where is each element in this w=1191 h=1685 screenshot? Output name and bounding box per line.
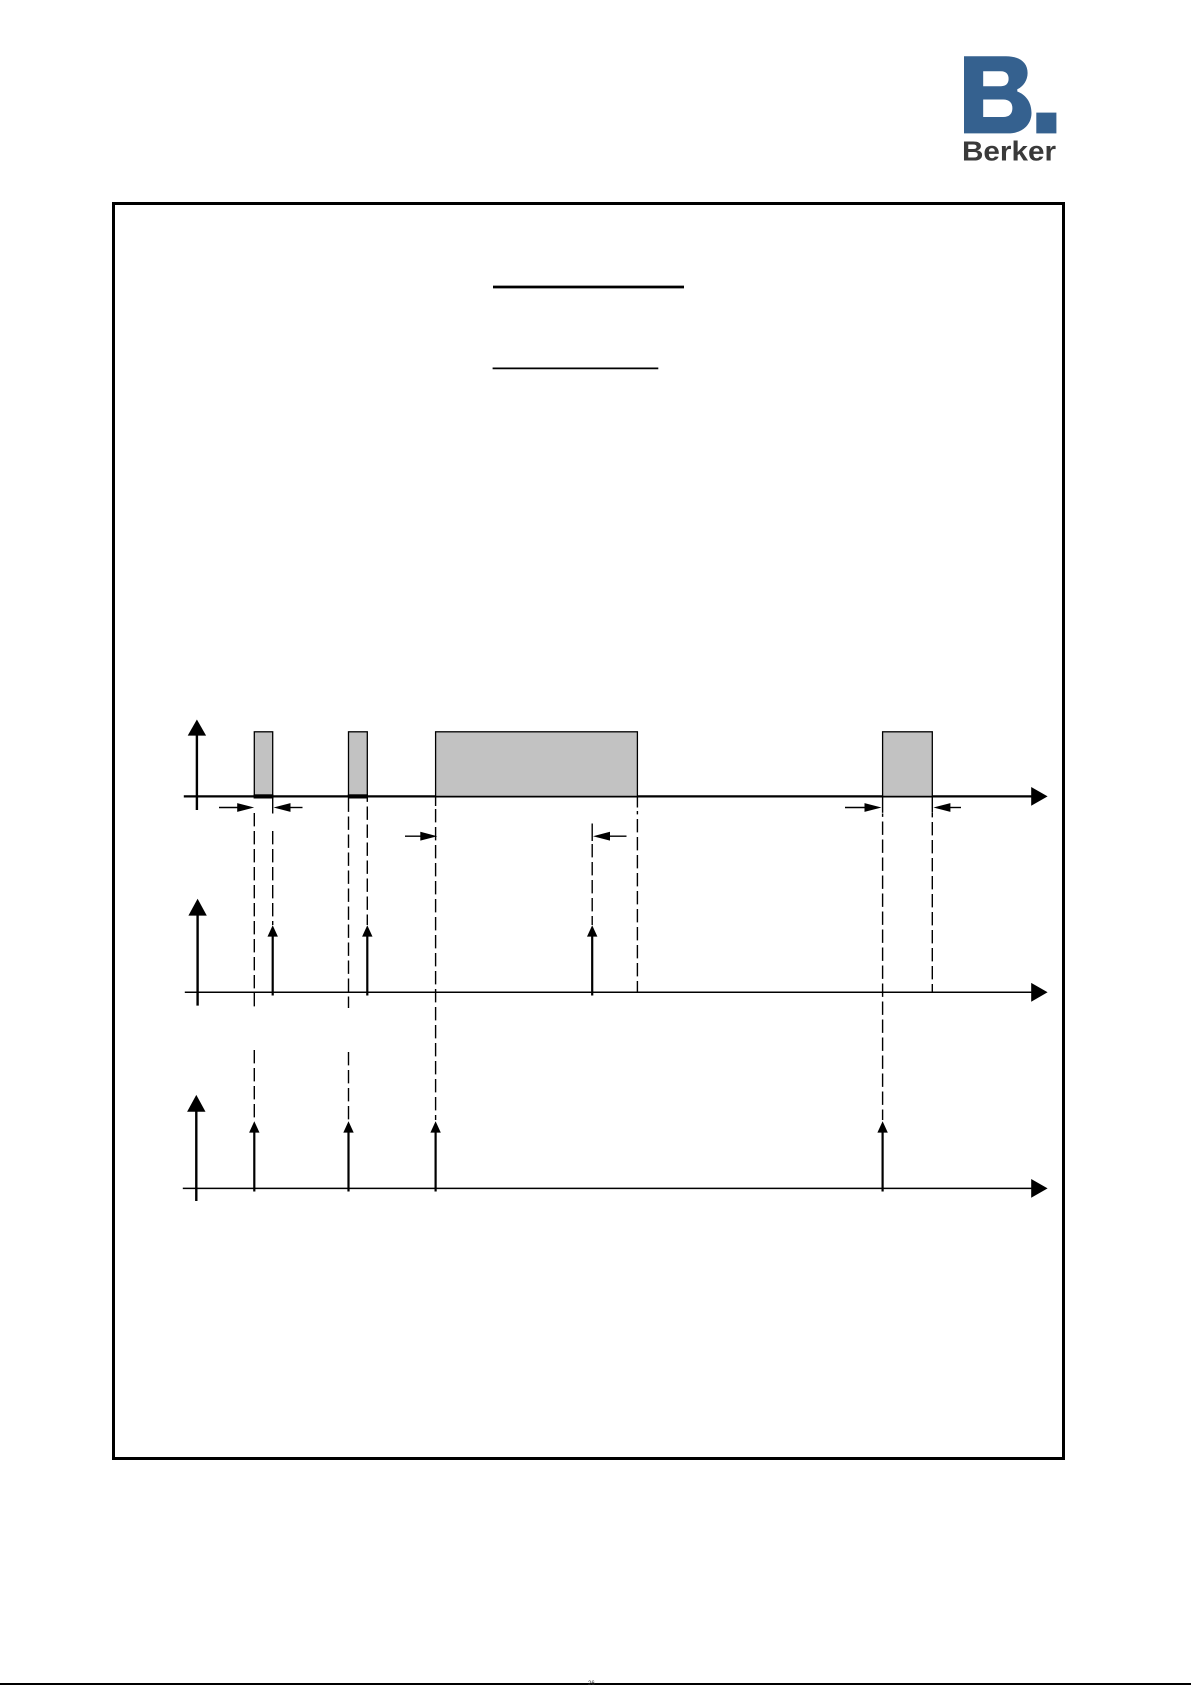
svg-text:Berker: Berker — [962, 136, 1056, 167]
svg-text:26: 26 — [588, 1681, 595, 1685]
